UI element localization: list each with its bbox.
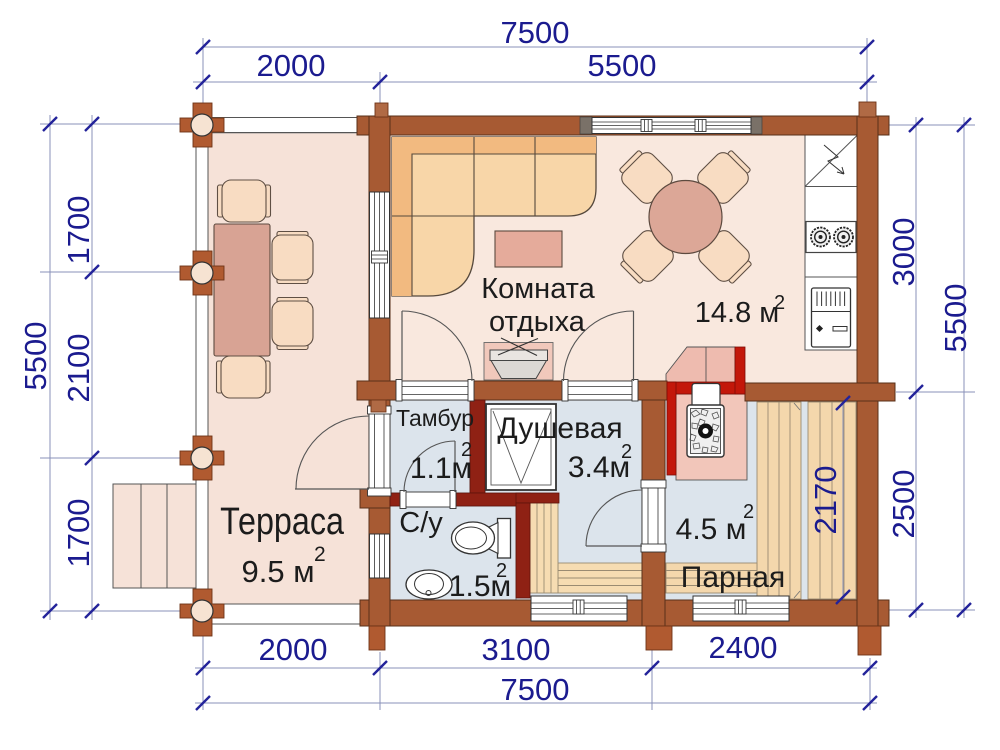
svg-text:2: 2 (314, 543, 326, 566)
svg-text:Тамбур: Тамбур (396, 405, 474, 431)
svg-text:Комната: Комната (481, 273, 595, 305)
svg-text:С/у: С/у (399, 507, 443, 539)
svg-text:2500: 2500 (886, 470, 921, 539)
svg-text:Парная: Парная (681, 561, 785, 594)
svg-text:2100: 2100 (61, 334, 96, 403)
svg-text:2000: 2000 (257, 48, 326, 83)
svg-text:Душевая: Душевая (497, 412, 622, 445)
svg-text:7500: 7500 (501, 15, 570, 50)
svg-text:5500: 5500 (588, 48, 657, 83)
svg-text:2: 2 (496, 560, 507, 582)
svg-text:3100: 3100 (482, 632, 551, 667)
svg-text:2: 2 (743, 501, 754, 523)
svg-text:9.5 м: 9.5 м (241, 554, 314, 589)
svg-text:1700: 1700 (61, 499, 96, 568)
svg-text:2400: 2400 (709, 630, 778, 665)
svg-text:отдыха: отдыха (489, 306, 586, 338)
svg-text:Терраса: Терраса (220, 501, 344, 543)
svg-text:2000: 2000 (259, 632, 328, 667)
svg-text:7500: 7500 (501, 672, 570, 707)
svg-text:2170: 2170 (808, 466, 843, 535)
svg-text:5500: 5500 (938, 284, 973, 353)
svg-text:5500: 5500 (18, 322, 53, 391)
svg-text:14.8 м: 14.8 м (695, 297, 779, 329)
svg-text:2: 2 (774, 292, 785, 314)
svg-text:2: 2 (461, 439, 472, 461)
svg-text:4.5 м: 4.5 м (676, 513, 747, 546)
svg-text:1700: 1700 (61, 196, 96, 265)
svg-text:3000: 3000 (886, 218, 921, 287)
svg-text:2: 2 (621, 441, 632, 463)
